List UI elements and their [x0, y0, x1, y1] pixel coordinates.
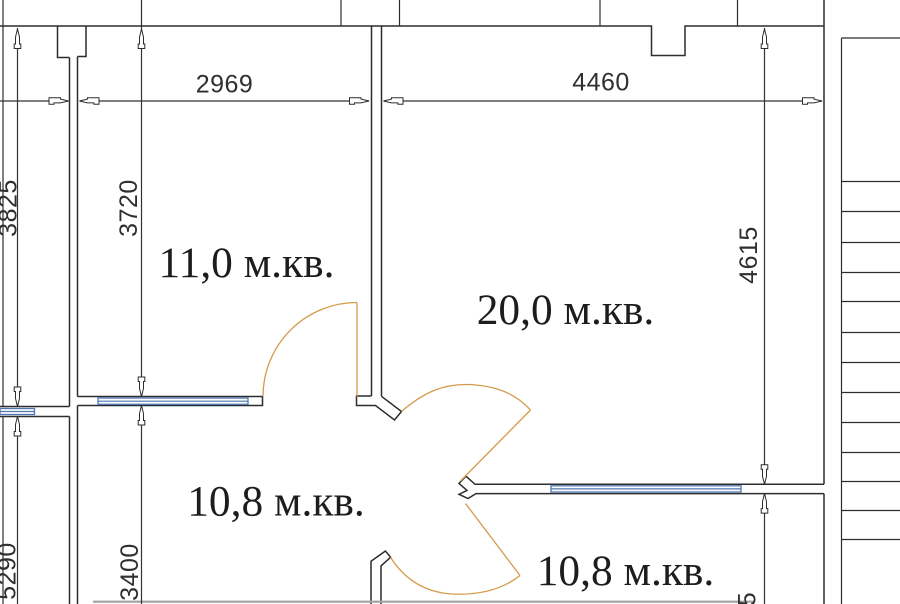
svg-text:10,8 м.кв.: 10,8 м.кв. [537, 547, 715, 595]
svg-text:3720: 3720 [115, 179, 143, 237]
svg-text:3825: 3825 [0, 179, 23, 237]
svg-text:5: 5 [734, 592, 762, 604]
svg-text:10,8 м.кв.: 10,8 м.кв. [187, 478, 365, 526]
svg-text:4460: 4460 [572, 69, 630, 97]
svg-text:4615: 4615 [735, 226, 763, 284]
svg-text:20,0 м.кв.: 20,0 м.кв. [477, 286, 655, 334]
svg-text:2969: 2969 [196, 71, 254, 99]
svg-text:3400: 3400 [116, 543, 144, 601]
svg-text:11,0 м.кв.: 11,0 м.кв. [159, 239, 335, 287]
svg-text:5290: 5290 [0, 542, 22, 600]
